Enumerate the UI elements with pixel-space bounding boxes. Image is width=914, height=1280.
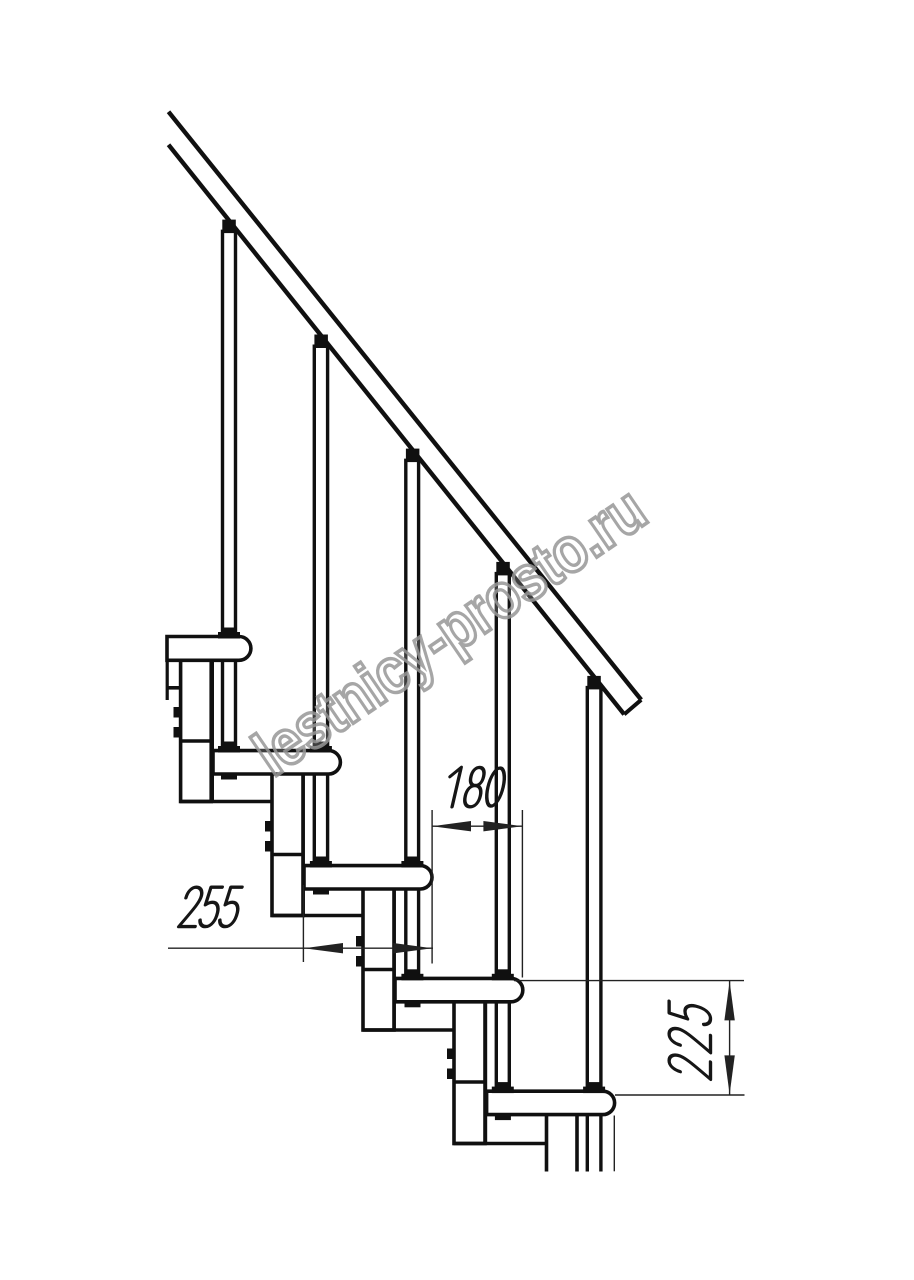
svg-text:lestnicy-prosto.ru: lestnicy-prosto.ru [240,473,658,790]
